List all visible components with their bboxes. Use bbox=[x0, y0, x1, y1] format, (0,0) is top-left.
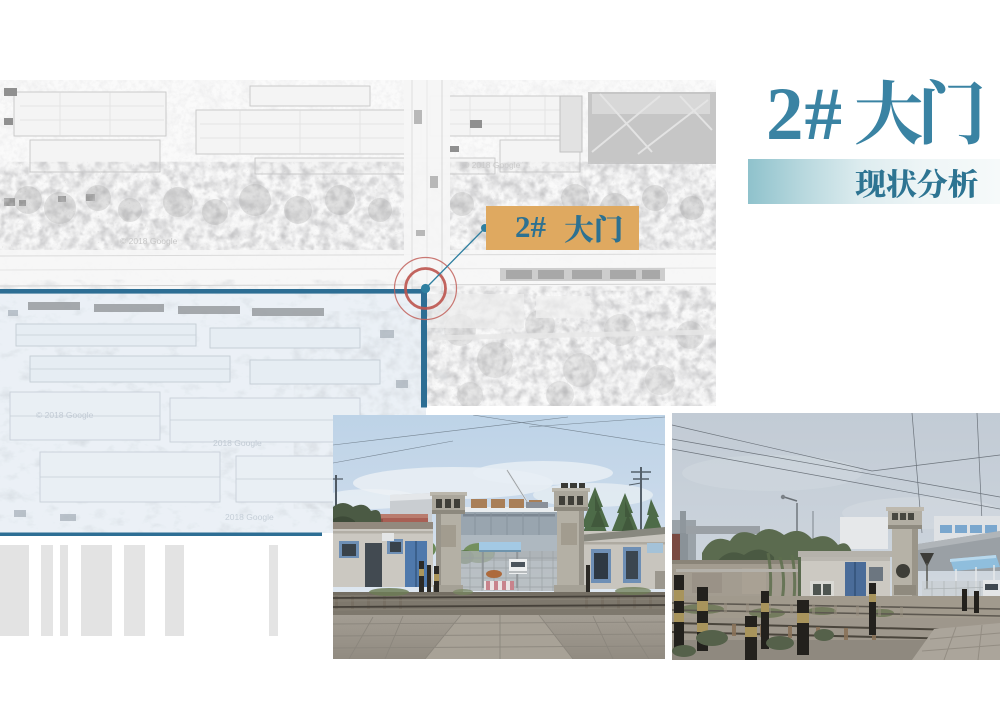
svg-text:© 2018 Google: © 2018 Google bbox=[463, 160, 521, 170]
svg-text:© 2018 Google: © 2018 Google bbox=[120, 236, 178, 246]
